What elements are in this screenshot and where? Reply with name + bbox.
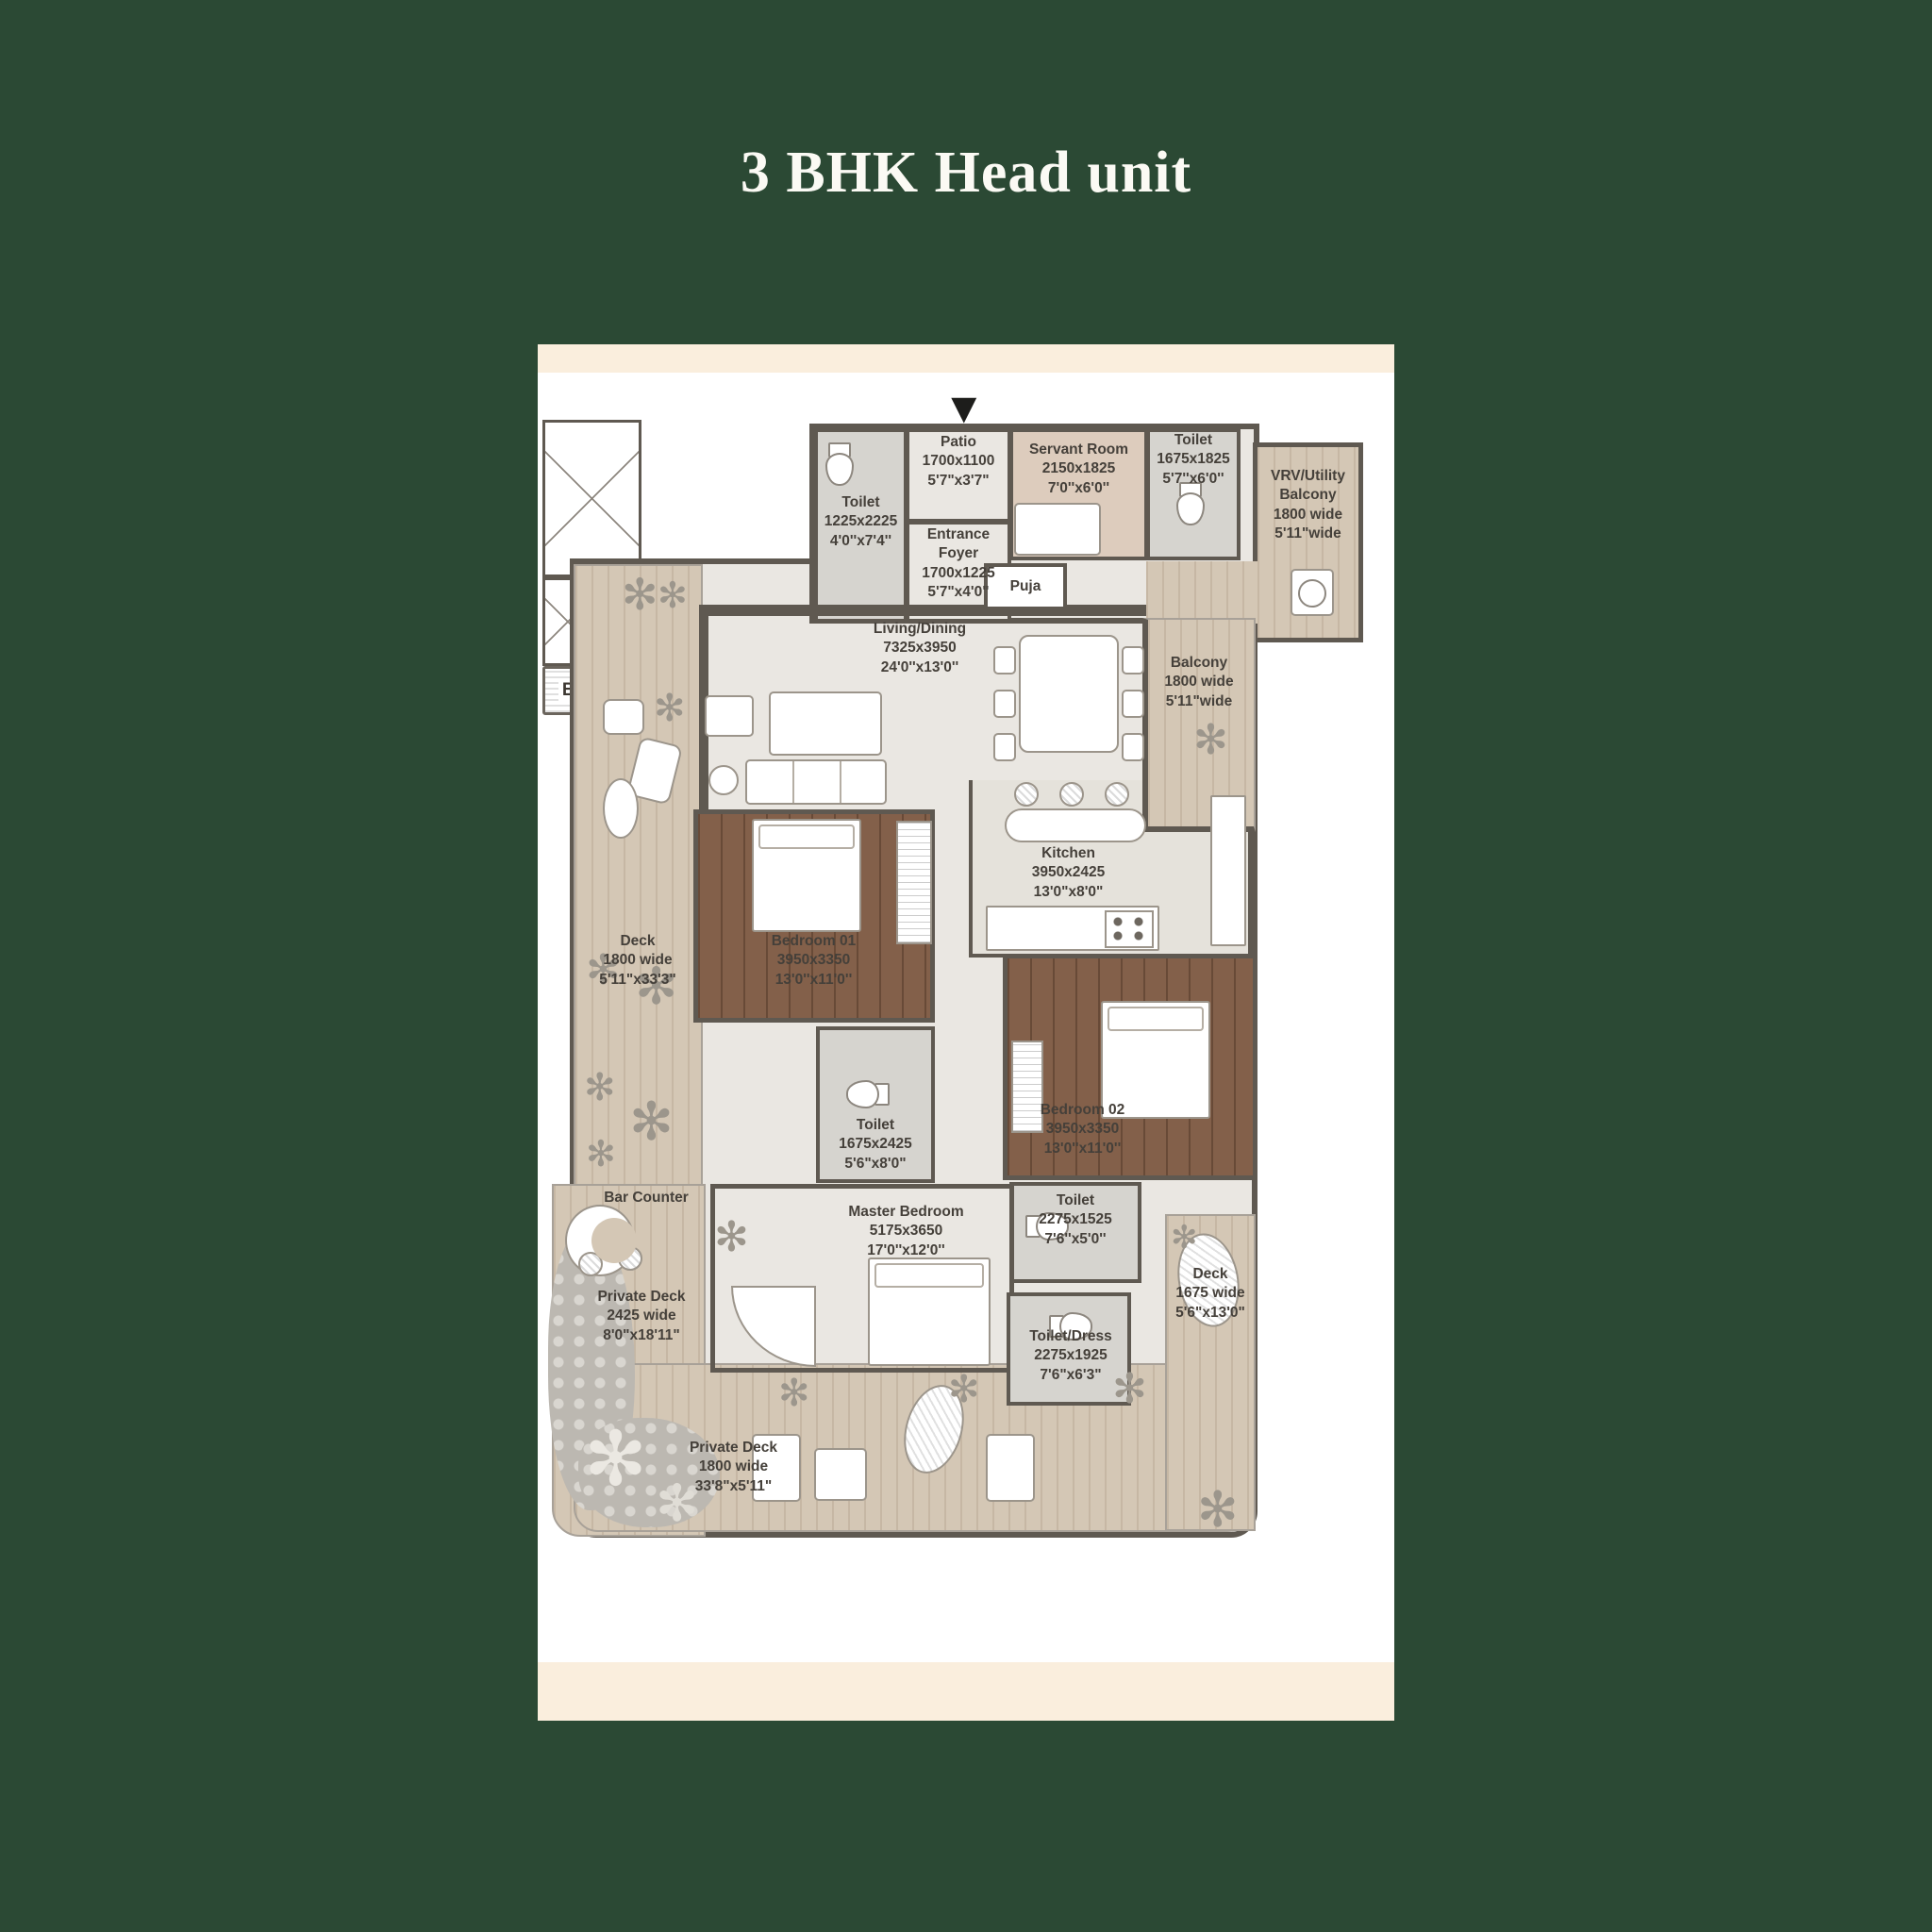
dining-table (1019, 635, 1119, 753)
armchair (705, 695, 754, 737)
room-name: Deck (576, 932, 699, 951)
room-dim-ft: 24'0''x13'0'' (807, 658, 1033, 677)
room-dim-ft: 8'0"x18'11" (566, 1326, 717, 1345)
floorplan-panel: ▼ Puja (538, 344, 1394, 1721)
room-name: Balcony (1144, 654, 1254, 673)
room-label-kitchen: Kitchen 3950x2425 13'0"x8'0" (986, 844, 1151, 902)
room-dim-mm: 1700x1100 (906, 452, 1011, 471)
cooktop-icon (1105, 910, 1154, 948)
room-dim-ft: 5'11"x33'3" (576, 971, 699, 990)
toilet-icon (846, 1080, 890, 1108)
room-label-servant-room: Servant Room 2150x1825 7'0''x6'0'' (1009, 441, 1148, 498)
refrigerator-counter (1210, 795, 1246, 946)
room-dim-ft: 13'0''x11'0'' (1005, 1140, 1160, 1158)
room-dim-mm: 1800 wide (1144, 673, 1254, 691)
kitchen-island (1005, 808, 1146, 842)
room-dim-ft: 7'6"x6'3" (1005, 1366, 1137, 1385)
room-label-toilet-dress: Toilet/Dress 2275x1925 7'6"x6'3" (1005, 1327, 1137, 1385)
room-label-patio: Patio 1700x1100 5'7"x3'7" (906, 433, 1011, 491)
room-dim-ft: 17'0''x12'0'' (795, 1241, 1017, 1260)
room-dim-mm: 2150x1825 (1009, 459, 1148, 478)
room-label-bar-counter: Bar Counter (571, 1189, 722, 1207)
room-dim-ft: 5'6"x13'0" (1165, 1304, 1256, 1323)
bed (868, 1257, 991, 1366)
dining-chair (1122, 733, 1144, 761)
room-dim-mm: 2275x1525 (1014, 1210, 1137, 1229)
room-label-toilet-entry: Toilet 1225x2225 4'0''x7'4'' (812, 493, 909, 551)
room-name: VRV/Utility Balcony (1255, 467, 1361, 506)
bar-stool (1014, 782, 1039, 807)
room-name: Patio (906, 433, 1011, 452)
wardrobe (896, 821, 932, 944)
room-dim-ft: 5'7"x3'7" (906, 472, 1011, 491)
room-dim-ft: 5'11"wide (1255, 525, 1361, 543)
room-dim-ft: 13'0"x8'0" (986, 883, 1151, 902)
room-name: Private Deck (646, 1439, 821, 1457)
room-name: Toilet (1014, 1191, 1137, 1210)
room-label-vrv-utility-balcony: VRV/Utility Balcony 1800 wide 5'11"wide (1255, 467, 1361, 544)
deck-chair (603, 699, 644, 735)
room-label-private-deck-bottom: Private Deck 1800 wide 33'8"x5'11" (646, 1439, 821, 1496)
room-name: Bar Counter (571, 1189, 722, 1207)
deck-bench (986, 1434, 1035, 1502)
plant-icon: ✻ (658, 578, 688, 614)
room-label-toilet-bedroom-01: Toilet 1675x2425 5'6"x8'0" (818, 1116, 933, 1174)
dining-chair (993, 733, 1016, 761)
page: { "title": "3 BHK Head unit", "colors": … (0, 0, 1932, 1932)
room-label-toilet-bedroom-02: Toilet 2275x1525 7'6''x5'0'' (1014, 1191, 1137, 1249)
room-dim-mm: 1225x2225 (812, 512, 909, 531)
plant-icon: ✻ (629, 1095, 674, 1148)
room-label-puja: Puja (1010, 577, 1041, 596)
plant-icon: ✻ (1171, 1222, 1198, 1254)
room-label-toilet-servant: Toilet 1675x1825 5'7''x6'0'' (1146, 431, 1241, 489)
room-label-bedroom-01: Bedroom 01 3950x3350 13'0''x11'0'' (717, 932, 910, 990)
room-dim-mm: 1800 wide (646, 1457, 821, 1476)
room-name: Master Bedroom (795, 1203, 1017, 1222)
washing-machine-icon (1291, 569, 1334, 616)
room-label-entrance-foyer: Entrance Foyer 1700x1225 5'7"x4'0" (908, 525, 1009, 603)
room-name: Puja (1010, 577, 1041, 596)
room-name: Bedroom 02 (1005, 1101, 1160, 1120)
wall-segment (703, 605, 1146, 616)
room-dim-ft: 5'7''x6'0'' (1146, 470, 1241, 489)
deck-lounger (603, 778, 639, 839)
room-name: Private Deck (566, 1288, 717, 1307)
plant-icon: ✻ (584, 1422, 647, 1497)
room-dim-mm: 5175x3650 (795, 1222, 1017, 1241)
room-name: Deck (1165, 1265, 1256, 1284)
plant-icon: ✻ (948, 1371, 980, 1408)
room-dim-ft: 5'6"x8'0" (818, 1155, 933, 1174)
room-name: Toilet (1146, 431, 1241, 450)
room-dim-mm: 7325x3950 (807, 639, 1033, 658)
room-dim-mm: 3950x3350 (1005, 1120, 1160, 1139)
page-title: 3 BHK Head unit (0, 140, 1932, 207)
dining-chair (1122, 646, 1144, 675)
room-name: Toilet (818, 1116, 933, 1135)
room-dim-mm: 1800 wide (1255, 506, 1361, 525)
room-label-balcony: Balcony 1800 wide 5'11"wide (1144, 654, 1254, 711)
plant-icon: ✻ (714, 1217, 749, 1258)
room-dim-mm: 1800 wide (576, 951, 699, 970)
room-dim-mm: 3950x2425 (986, 863, 1151, 882)
room-name: Toilet/Dress (1005, 1327, 1137, 1346)
room-dim-mm: 1700x1225 (908, 564, 1009, 583)
servant-bed (1014, 503, 1101, 556)
entrance-arrow-icon: ▼ (942, 386, 986, 429)
floor-plan: ▼ Puja (542, 420, 1373, 1542)
deck-table (814, 1448, 867, 1501)
plant-icon: ✻ (586, 1137, 616, 1173)
bar-stool (1105, 782, 1129, 807)
room-dim-mm: 2425 wide (566, 1307, 717, 1325)
room-name: Bedroom 01 (717, 932, 910, 951)
room-label-living-dining: Living/Dining 7325x3950 24'0''x13'0'' (807, 620, 1033, 677)
plant-icon: ✻ (654, 690, 686, 727)
room-dim-ft: 7'0''x6'0'' (1009, 479, 1148, 498)
toilet-icon (825, 442, 854, 486)
room-dim-mm: 1675x2425 (818, 1135, 933, 1154)
dining-chair (1122, 690, 1144, 718)
plant-icon: ✻ (778, 1374, 810, 1412)
dining-chair (993, 690, 1016, 718)
room-label-bedroom-02: Bedroom 02 3950x3350 13'0''x11'0'' (1005, 1101, 1160, 1158)
panel-top-band (538, 344, 1394, 373)
room-dim-ft: 5'7"x4'0" (908, 583, 1009, 602)
room-label-deck-left: Deck 1800 wide 5'11"x33'3" (576, 932, 699, 990)
room-dim-mm: 3950x3350 (717, 951, 910, 970)
plant-icon: ✻ (1193, 720, 1228, 761)
passage-floor (1146, 561, 1257, 624)
room-name: Toilet (812, 493, 909, 512)
room-label-master-bedroom: Master Bedroom 5175x3650 17'0''x12'0'' (795, 1203, 1017, 1260)
room-dim-mm: 1675 wide (1165, 1284, 1256, 1303)
plant-icon: ✻ (622, 573, 658, 616)
bed (752, 819, 861, 932)
room-name: Servant Room (1009, 441, 1148, 459)
room-name: Entrance Foyer (908, 525, 1009, 564)
sofa (745, 759, 887, 805)
bar-counter-shape (591, 1218, 637, 1263)
room-label-private-deck-left: Private Deck 2425 wide 8'0"x18'11" (566, 1288, 717, 1345)
room-dim-mm: 2275x1925 (1005, 1346, 1137, 1365)
panel-bottom-band (538, 1662, 1394, 1721)
room-dim-ft: 4'0''x7'4'' (812, 532, 909, 551)
service-shaft (542, 420, 641, 577)
room-dim-ft: 5'11"wide (1144, 692, 1254, 711)
room-dim-ft: 13'0''x11'0'' (717, 971, 910, 990)
plant-icon: ✻ (1197, 1486, 1239, 1535)
side-table (708, 765, 739, 795)
room-dim-mm: 1675x1825 (1146, 450, 1241, 469)
room-dim-ft: 33'8"x5'11" (646, 1477, 821, 1496)
room-name: Living/Dining (807, 620, 1033, 639)
room-name: Kitchen (986, 844, 1151, 863)
plant-icon: ✻ (584, 1069, 616, 1107)
room-dim-ft: 7'6''x5'0'' (1014, 1230, 1137, 1249)
room-label-deck-right: Deck 1675 wide 5'6"x13'0" (1165, 1265, 1256, 1323)
coffee-table (769, 691, 882, 756)
bar-stool (1059, 782, 1084, 807)
